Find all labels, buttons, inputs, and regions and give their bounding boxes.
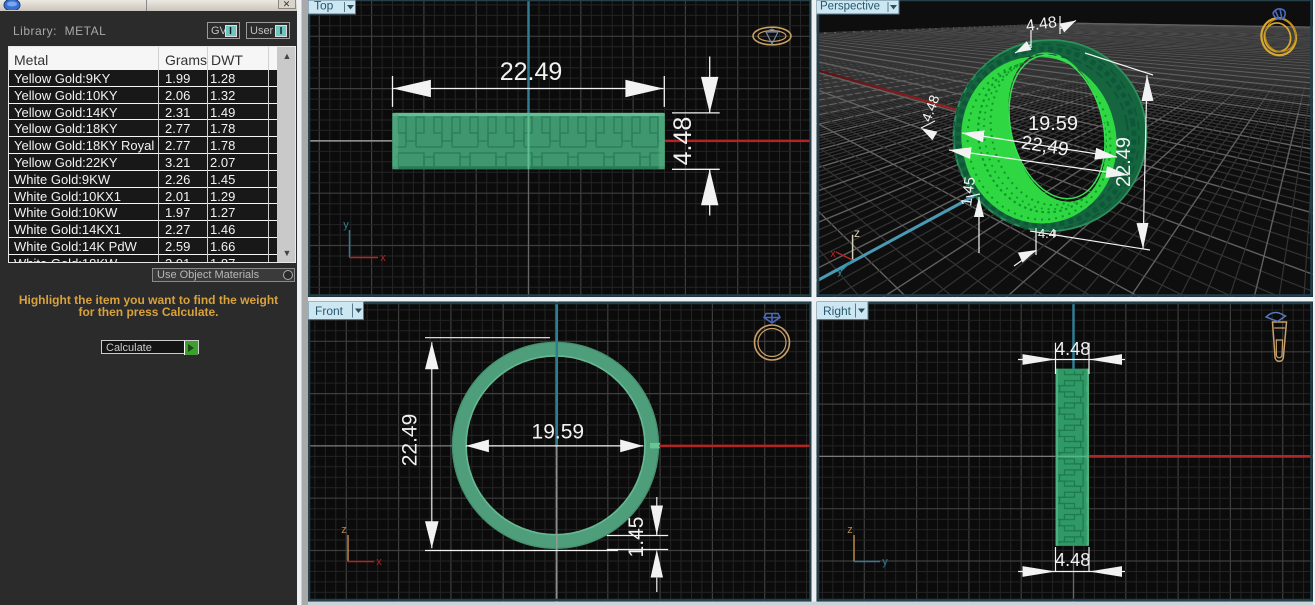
- svg-text:z: z: [341, 524, 347, 536]
- svg-text:x: x: [380, 252, 386, 264]
- svg-text:22.49: 22.49: [399, 414, 422, 467]
- svg-text:Front: Front: [315, 304, 344, 318]
- svg-text:4.48: 4.48: [1055, 339, 1090, 359]
- svg-text:Right: Right: [823, 304, 852, 318]
- svg-text:22.49: 22.49: [500, 58, 563, 86]
- svg-text:y: y: [837, 265, 843, 277]
- svg-text:Perspective: Perspective: [820, 1, 880, 13]
- svg-text:Top: Top: [314, 0, 334, 13]
- svg-text:22.49: 22.49: [1113, 137, 1135, 187]
- svg-text:4.48: 4.48: [669, 117, 697, 166]
- svg-text:z: z: [847, 524, 853, 536]
- svg-text:x: x: [830, 248, 836, 260]
- svg-text:y: y: [343, 219, 349, 231]
- svg-text:z: z: [854, 226, 860, 240]
- svg-text:y: y: [882, 556, 888, 568]
- svg-text:4.48: 4.48: [1055, 550, 1090, 570]
- svg-text:1.45: 1.45: [625, 517, 648, 558]
- svg-text:4.4: 4.4: [1038, 226, 1056, 241]
- svg-text:x: x: [376, 556, 382, 568]
- svg-text:19.59: 19.59: [532, 421, 585, 444]
- svg-text:19.59: 19.59: [1028, 113, 1078, 135]
